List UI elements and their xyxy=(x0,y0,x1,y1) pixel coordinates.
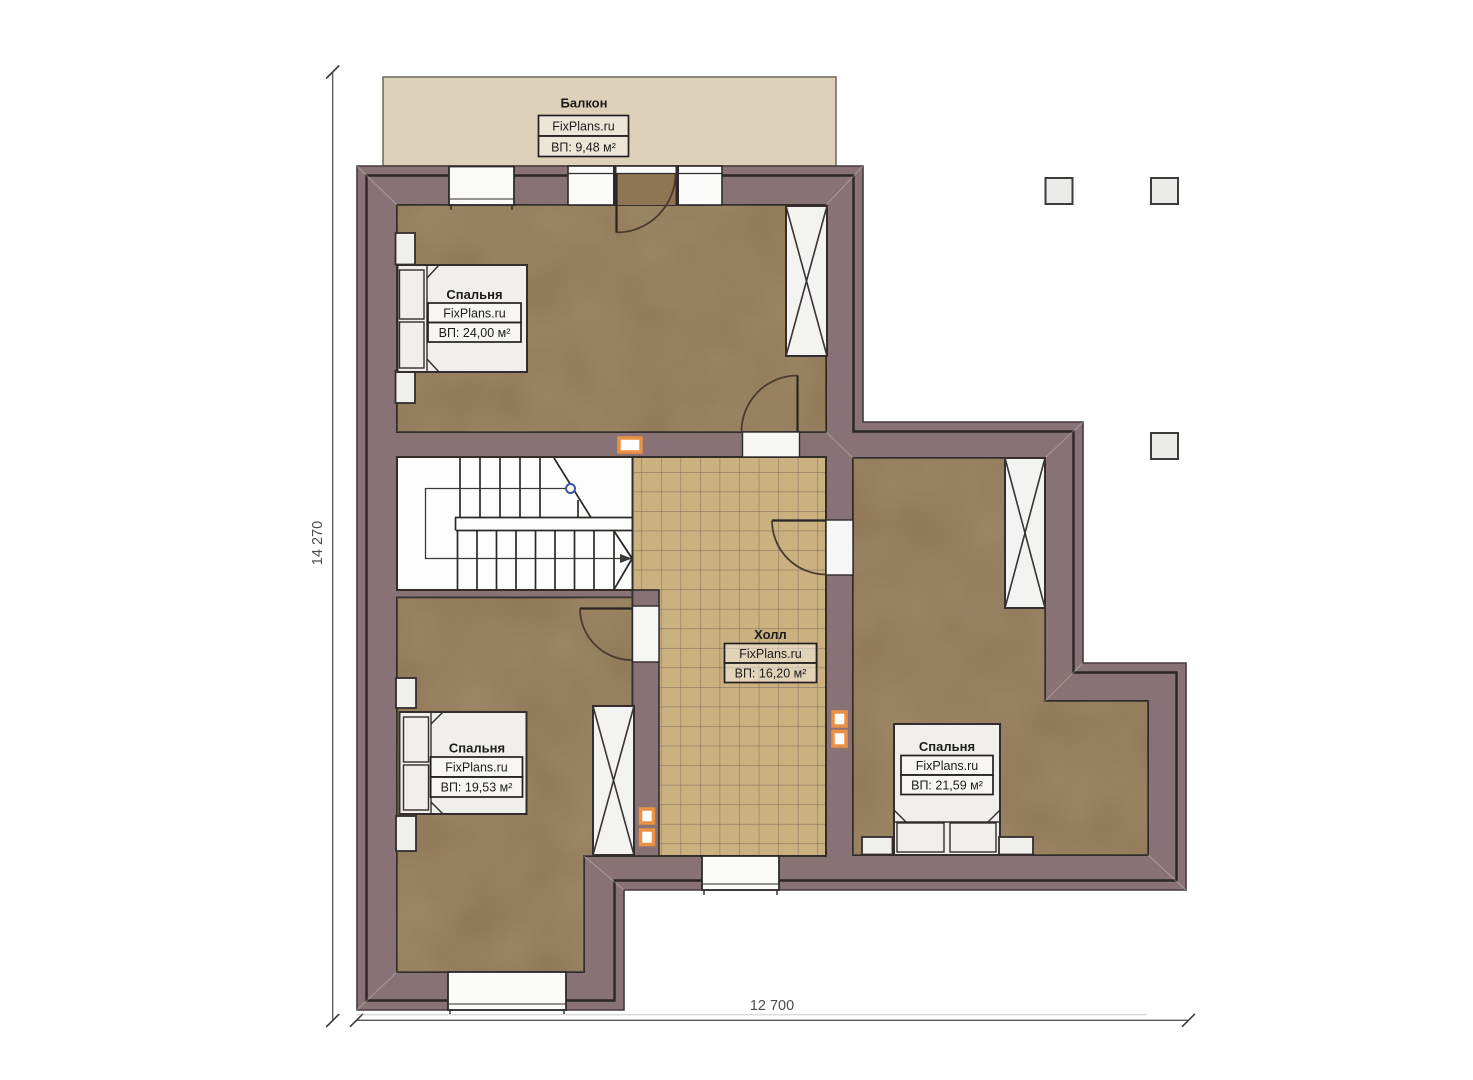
svg-text:Спальня: Спальня xyxy=(919,739,975,754)
svg-text:FixPlans.ru: FixPlans.ru xyxy=(445,761,508,775)
svg-text:Спальня: Спальня xyxy=(446,287,502,302)
svg-text:Спальня: Спальня xyxy=(449,741,505,756)
svg-text:Балкон: Балкон xyxy=(561,96,608,111)
svg-text:14 270: 14 270 xyxy=(310,521,326,565)
svg-text:FixPlans.ru: FixPlans.ru xyxy=(739,647,802,661)
svg-text:12 700: 12 700 xyxy=(750,998,794,1014)
svg-text:ВП: 21,59 м²: ВП: 21,59 м² xyxy=(911,779,983,793)
svg-text:FixPlans.ru: FixPlans.ru xyxy=(916,759,979,773)
svg-text:ВП: 16,20 м²: ВП: 16,20 м² xyxy=(735,667,807,681)
svg-text:ВП: 24,00 м²: ВП: 24,00 м² xyxy=(439,326,511,340)
svg-text:ВП: 9,48 м²: ВП: 9,48 м² xyxy=(551,141,616,155)
svg-text:ВП: 19,53 м²: ВП: 19,53 м² xyxy=(441,781,513,795)
svg-text:FixPlans.ru: FixPlans.ru xyxy=(552,120,615,134)
svg-text:Холл: Холл xyxy=(754,627,787,642)
svg-text:FixPlans.ru: FixPlans.ru xyxy=(443,307,506,321)
